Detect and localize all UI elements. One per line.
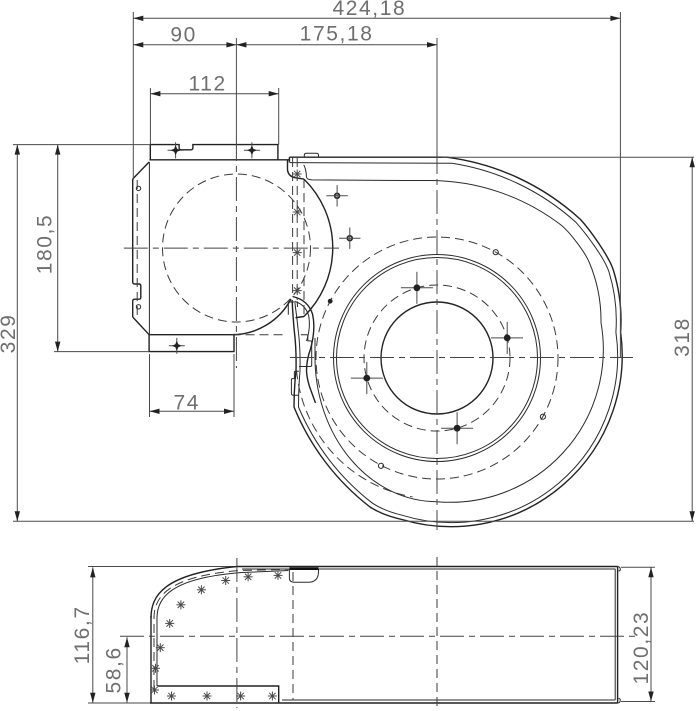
svg-text:74: 74: [174, 392, 201, 415]
svg-text:58,6: 58,6: [103, 646, 126, 693]
svg-text:116,7: 116,7: [71, 605, 94, 664]
svg-text:112: 112: [188, 72, 226, 95]
svg-text:424,18: 424,18: [332, 0, 406, 20]
svg-text:120,23: 120,23: [630, 611, 653, 685]
svg-text:180,5: 180,5: [34, 214, 57, 275]
svg-text:175,18: 175,18: [300, 23, 374, 46]
svg-text:318: 318: [671, 317, 694, 357]
svg-text:329: 329: [0, 313, 20, 353]
svg-text:90: 90: [170, 24, 197, 47]
